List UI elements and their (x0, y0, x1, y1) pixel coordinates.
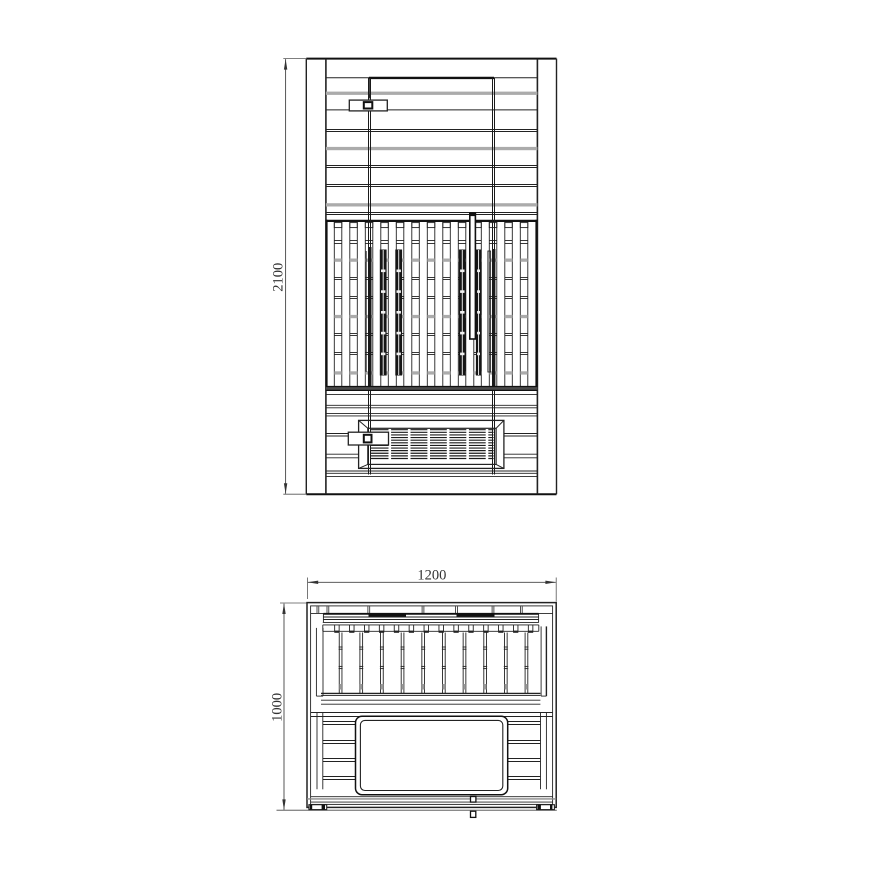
svg-text:1000: 1000 (270, 693, 286, 722)
svg-text:1200: 1200 (417, 568, 446, 584)
svg-text:2100: 2100 (271, 263, 287, 292)
